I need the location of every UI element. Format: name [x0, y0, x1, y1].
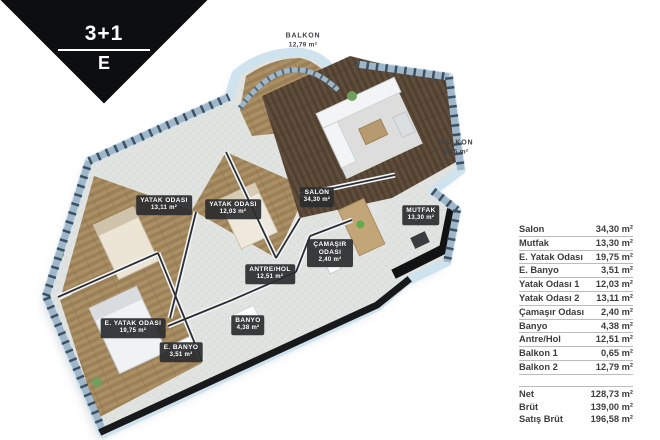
area-summary: Net 128,73 m² Brüt 139,00 m² Satış Brüt …: [519, 386, 633, 426]
area-row-e-banyo: E. Banyo 3,51 m²: [519, 264, 633, 278]
room-label-antre-hol: ANTRE/HOL 12,51 m²: [245, 264, 295, 284]
room-label-yatak-odasi-2: YATAK ODASI 13,11 m²: [136, 195, 192, 215]
floorplan-page: 3+1 E SALON 34,30 m² MUTFAK 13,30 m² YAT…: [0, 0, 660, 440]
room-label-e-banyo: E. BANYO 3,51 m²: [160, 342, 203, 362]
area-row-antre-hol: Antre/Hol 12,51 m²: [519, 333, 633, 347]
area-table: Salon 34,30 m² Mutfak 13,30 m² E. Yatak …: [519, 223, 633, 426]
room-label-banyo: BANYO 4,38 m²: [231, 315, 264, 335]
plant: [347, 91, 357, 101]
ribbon-divider: [58, 49, 150, 51]
area-row-salon: Salon 34,30 m²: [519, 223, 633, 237]
summary-row-net: Net 128,73 m²: [519, 388, 633, 401]
unit-block-label: E: [29, 53, 179, 74]
room-label-mutfak: MUTFAK 13,30 m²: [402, 205, 439, 225]
area-row-banyo: Banyo 4,38 m²: [519, 320, 633, 334]
area-row-balkon-1: Balkon 1 0,65 m²: [519, 347, 633, 361]
plant: [92, 377, 102, 387]
room-label-balkon-ust: BALKON 12,79 m²: [286, 33, 321, 50]
area-row-yatak-odasi-1: Yatak Odası 1 12,03 m²: [519, 278, 633, 292]
summary-row-satis-brut: Satış Brüt 196,58 m²: [519, 413, 633, 426]
area-row-mutfak: Mutfak 13,30 m²: [519, 237, 633, 251]
unit-type-label: 3+1: [29, 22, 179, 46]
area-row-balkon-2: Balkon 2 12,79 m²: [519, 361, 633, 375]
area-row-yatak-odasi-2: Yatak Odası 2 13,11 m²: [519, 292, 633, 306]
room-label-balkon-yan: BALKON 0,65 m²: [439, 140, 474, 157]
area-row-e-yatak-odasi: E. Yatak Odası 19,75 m²: [519, 251, 633, 265]
area-row-camasir-odasi: Çamaşır Odası 2,40 m²: [519, 306, 633, 320]
room-label-yatak-odasi-1: YATAK ODASI 12,03 m²: [205, 199, 261, 219]
room-label-e-yatak-odasi: E. YATAK ODASI 19,75 m²: [101, 318, 166, 338]
unit-type-text: 3+1 E: [29, 22, 179, 74]
room-label-camasir-odasi: ÇAMAŞIR ODASI 2,40 m²: [307, 239, 353, 267]
room-label-salon: SALON 34,30 m²: [300, 187, 334, 207]
summary-row-brut: Brüt 139,00 m²: [519, 401, 633, 414]
